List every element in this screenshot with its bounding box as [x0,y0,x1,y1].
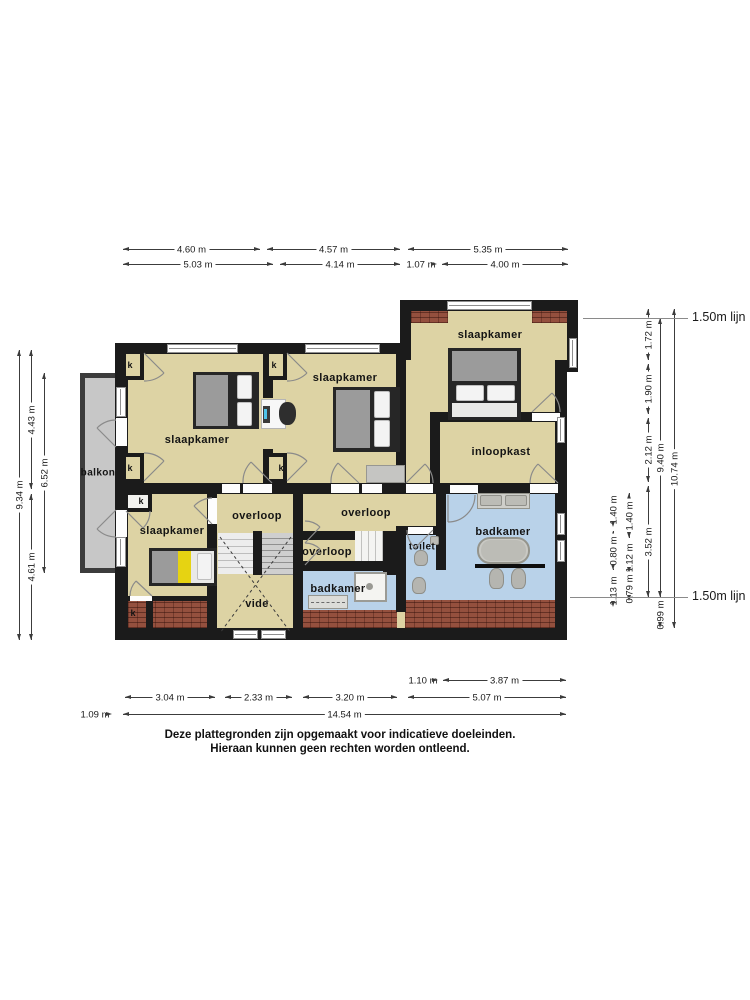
toilet-fixture [511,568,526,589]
disclaimer: Deze plattegronden zijn opgemaakt voor i… [40,729,640,756]
room-label-overloop-left: overloop [232,510,282,522]
vanity-edge [475,564,545,568]
bed-duvet [452,351,517,381]
dimension-label: 0.80 m [609,533,620,568]
window [557,417,565,443]
pillow [197,553,212,580]
dimension-label: 4.57 m [316,245,351,256]
window [116,387,126,417]
roof-hatch [405,600,555,628]
dimension-label: 2.33 m [241,693,276,704]
window [557,513,565,535]
door-opening [130,596,152,601]
dimension: 2.12 m [648,418,649,482]
window [447,301,532,310]
dimension-label: 4.43 m [27,402,38,437]
dimension-label: 1.10 m [405,676,440,687]
sink-basin [480,495,502,506]
room-label-inloopkast: inloopkast [471,446,530,458]
door-opening [450,485,478,493]
dimension: 4.14 m [280,264,400,265]
bathroom-counter [308,595,348,609]
wall [555,368,567,640]
dimension: 1.90 m [648,364,649,414]
dimension: 1.09 m [78,714,112,715]
dimension: 4.00 m [442,264,568,265]
bed-foot [452,403,517,417]
dimension-label: 5.35 m [470,245,505,256]
wall [396,526,406,612]
dimension-label: 6.52 m [40,455,51,490]
wall [400,300,411,360]
dimension-label: 1.12 m [625,540,636,575]
room-label-overloop-middle: overloop [341,507,391,519]
shower-drain [366,583,373,590]
dimension-label: 0.79 m [625,571,636,606]
level-line-label: 1.50m lijn [692,589,746,603]
door-opening [408,527,433,534]
dimension-label: 14.54 m [324,710,364,721]
monitor-screen [264,409,267,419]
wall [301,561,396,571]
dimension: 4.60 m [123,249,260,250]
dimension: 4.43 m [31,350,32,489]
dimension: 9.40 m [660,318,661,597]
dimension: 1.10 m [408,680,438,681]
window [557,540,565,562]
dimension-label: 3.52 m [644,524,655,559]
dimension-label: 4.14 m [322,260,357,271]
dimension-label: 10.74 m [670,448,681,488]
toilet-fixture [489,568,504,589]
dimension: 9.34 m [19,350,20,640]
roof-hatch [411,311,448,323]
door-opening [116,418,127,446]
dimension-label: 1.40 m [625,498,636,533]
door-opening [532,413,560,421]
bed-blanket [178,551,191,583]
room-label-balkon: balkon [81,468,116,479]
dimension-label: 9.40 m [656,440,667,475]
dimension: 1.40 m [629,493,630,538]
dimension-label: 1.07 m [403,260,438,271]
pillow [237,375,252,399]
staircase-left [218,533,253,574]
pillow [374,420,390,447]
dimension: 2.33 m [225,697,292,698]
dimension: 1.07 m [405,264,437,265]
closet-label: k [271,360,276,370]
window [167,344,238,353]
dimension: 3.04 m [125,697,215,698]
window [261,630,286,639]
door-opening [208,498,217,524]
pillow [456,385,484,401]
dimension-label: 3.04 m [152,693,187,704]
window [569,338,577,368]
dimension-label: 1.40 m [609,492,620,527]
door-opening [243,484,272,493]
dimension: 5.03 m [123,264,273,265]
room-label-slaapkamer-topright: slaapkamer [458,329,523,341]
window [233,630,258,639]
dimension: 14.54 m [123,714,566,715]
wall [430,412,440,493]
desk-chair [279,402,296,425]
door-opening [116,510,127,537]
dimension-label: 0.99 m [656,597,667,632]
closet-label: k [127,463,132,473]
dimension: 3.87 m [443,680,566,681]
dimension-label: 3.87 m [487,676,522,687]
roof-hatch [532,311,567,323]
staircase-right [355,531,384,563]
disclaimer-line2: Hieraan kunnen geen rechten worden ontle… [40,743,640,757]
pillow [487,385,515,401]
closet-label: k [278,463,283,473]
level-line-150 [570,597,688,598]
bed-duvet [196,375,228,426]
door-opening [530,484,558,493]
dimension: 5.07 m [408,697,566,698]
dimension: 0.80 m [613,531,614,570]
level-line-150 [583,318,688,319]
dimension-label: 2.12 m [644,432,655,467]
room-label-badkamer-small: badkamer [310,583,365,595]
closet [122,453,144,483]
dimension: 5.35 m [408,249,568,250]
dimension: 4.61 m [31,494,32,640]
dimension-label: 9.34 m [15,477,26,512]
bed-duvet [152,551,178,583]
window [116,537,126,567]
toilet-fixture [412,577,426,594]
dimension-label: 1.72 m [644,317,655,352]
window [305,344,380,353]
closet-label: k [127,360,132,370]
pillow [374,391,390,418]
wall [146,598,153,628]
roof-hatch [301,610,397,628]
wall [303,531,355,540]
dimension-label: 5.03 m [180,260,215,271]
room-label-badkamer-right: badkamer [475,526,530,538]
dimension: 1.72 m [648,309,649,360]
closet-label: k [130,608,135,618]
room-label-toilet: toilet [409,542,435,553]
door-opening [331,484,359,493]
dimension: 0.99 m [660,601,661,628]
bed-duvet [336,390,370,448]
wall [115,628,567,640]
staircase-mid [262,533,293,575]
roof-hatch [128,598,215,628]
closet [265,453,287,483]
disclaimer-line1: Deze plattegronden zijn opgemaakt voor i… [40,729,640,743]
dimension-label: 4.60 m [174,245,209,256]
wall [253,531,262,575]
dimension-label: 5.07 m [469,693,504,704]
floorplan-page: { "disclaimer": { "line1": "Deze platteg… [0,0,750,1000]
room-label-vide: vide [245,598,269,610]
room-label-slaapkamer-topleft: slaapkamer [165,434,230,446]
dimension-label: 3.20 m [332,693,367,704]
pillow [237,402,252,426]
dimension: 1.13 m [613,574,614,607]
room-label-overloop-small: overloop [302,546,352,558]
closet-label: k [138,496,143,506]
door-opening [362,484,382,493]
dimension: 6.52 m [44,373,45,573]
door-opening [406,484,433,493]
dimension: 3.20 m [303,697,397,698]
bathtub-inner [481,540,526,561]
dimension: 3.52 m [648,486,649,597]
dimension-label: 1.90 m [644,371,655,406]
dimension: 1.40 m [613,493,614,527]
wall [436,494,446,570]
dimension: 4.57 m [267,249,400,250]
dimension-label: 4.00 m [487,260,522,271]
level-line-label: 1.50m lijn [692,310,746,324]
dimension-label: 1.13 m [609,573,620,608]
sink-basin [505,495,527,506]
dresser [366,465,405,483]
dimension-label: 4.61 m [27,549,38,584]
dimension: 10.74 m [674,309,675,628]
closet [122,350,144,380]
door-opening [222,484,240,493]
dimension-label: 1.09 m [77,710,112,721]
room-label-slaapkamer-bottomleft: slaapkamer [140,525,205,537]
room-label-slaapkamer-middle: slaapkamer [313,372,378,384]
dimension: 1.12 m [629,542,630,573]
